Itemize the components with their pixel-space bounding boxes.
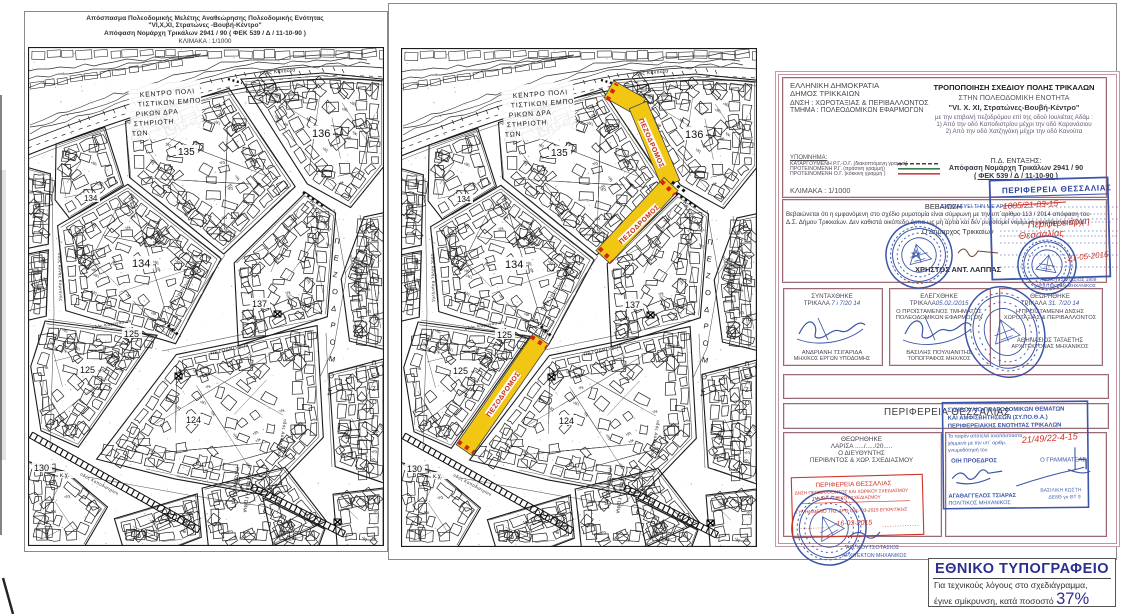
svg-text:χόμμενο με την υπ΄ αριθμ.: χόμμενο με την υπ΄ αριθμ. — [948, 439, 1006, 447]
svg-text:γνωμοδότησή του: γνωμοδότησή του — [948, 446, 988, 453]
svg-text:Θεσσαλίας: Θεσσαλίας — [1018, 228, 1064, 242]
svg-text:ΑΘ. ΚΟΥΤΣΟΤΑΣΙΟΣ: ΑΘ. ΚΟΥΤΣΟΤΑΣΙΟΣ — [846, 545, 900, 551]
svg-text:ΣΥΜΒΟΥΛΙΟ ΠΟΛΕΟΔΟΜΙΚΩΝ ΘΕΜΑΤΩΝ: ΣΥΜΒΟΥΛΙΟ ΠΟΛΕΟΔΟΜΙΚΩΝ ΘΕΜΑΤΩΝ — [948, 406, 1065, 413]
svg-text:Ο/Η ΠΡΟΕΔΡΟΣ: Ο/Η ΠΡΟΕΔΡΟΣ — [951, 458, 997, 464]
svg-text:16-03-2015: 16-03-2015 — [836, 520, 872, 528]
svg-text:21/49/22-4-15: 21/49/22-4-15 — [1020, 431, 1079, 445]
svg-text:ΠΕΡΙΦΕΡΕΙΑ ΘΕΣΣΑΛΙΑΣ: ΠΕΡΙΦΕΡΕΙΑ ΘΕΣΣΑΛΙΑΣ — [1002, 183, 1112, 195]
svg-text:ΤΜΗΜΑ ΧΩΡΙΚΟΥ ΣΧΕΔΙΑΣΜΟΥ: ΤΜΗΜΑ ΧΩΡΙΚΟΥ ΣΧΕΔΙΑΣΜΟΥ — [812, 494, 881, 501]
svg-text:ΑΡΧΙΤΕΚΤΩΝ ΜΗΧΑΝΙΚΟΣ: ΑΡΧΙΤΕΚΤΩΝ ΜΗΧΑΝΙΚΟΣ — [842, 553, 907, 559]
svg-text:ΠΟΛΙΤΙΚΟΣ ΜΗΧΑΝΙΚΟΣ: ΠΟΛΙΤΙΚΟΣ ΜΗΧΑΝΙΚΟΣ — [948, 500, 1011, 507]
svg-text:Ο ΓΡΑΜΜΑΤΕΑΣ: Ο ΓΡΑΜΜΑΤΕΑΣ — [1040, 457, 1086, 463]
svg-text:ΚΑΙ ΑΜΦΙΣΒΗΤΗΣΕΩΝ (ΣΥ.ΠΟ.Θ.Α.): ΚΑΙ ΑΜΦΙΣΒΗΤΗΣΕΩΝ (ΣΥ.ΠΟ.Θ.Α.) — [948, 415, 1048, 422]
svg-text:ΔΕ8Θ γκ ΘΤ 9: ΔΕ8Θ γκ ΘΤ 9 — [1048, 494, 1080, 500]
svg-text:ΑΡΧΙΤΕΚΤΩΝ ΜΗΧΑΝΙΚΟΣ: ΑΡΧΙΤΕΚΤΩΝ ΜΗΧΑΝΙΚΟΣ — [1036, 283, 1096, 289]
svg-text:ΣΥΝΟΔΕΥΕΙ ΤΗΝ ΜΕ ΑΡ.: ΣΥΝΟΔΕΥΕΙ ΤΗΝ ΜΕ ΑΡ. — [941, 204, 1005, 210]
svg-text:ΑΓΑΘΑΓΓΕΛΟΣ ΤΣΙΑΡΑΣ: ΑΓΑΘΑΓΓΕΛΟΣ ΤΣΙΑΡΑΣ — [948, 493, 1016, 500]
svg-text:ΒΑΣΙΛΙΚΗ ΚΩΣΤΗ: ΒΑΣΙΛΙΚΗ ΚΩΣΤΗ — [1040, 487, 1081, 493]
svg-text:ΠΕΡΙΦΕΡΕΙΑΚΗΣ ΕΝΟΤΗΤΑΣ ΤΡΙΚΑΛΩ: ΠΕΡΙΦΕΡΕΙΑΚΗΣ ΕΝΟΤΗΤΑΣ ΤΡΙΚΑΛΩΝ — [948, 423, 1062, 430]
svg-text:Το παρόν αποτελεί αναπόσπαστο: Το παρόν αποτελεί αναπόσπαστο — [948, 432, 1023, 440]
svg-text:ΑΘ.ΚΟΥΤΣΟΤΑΣΙΟΣ 1909: ΑΘ.ΚΟΥΤΣΟΤΑΣΙΟΣ 1909 — [1040, 277, 1097, 283]
